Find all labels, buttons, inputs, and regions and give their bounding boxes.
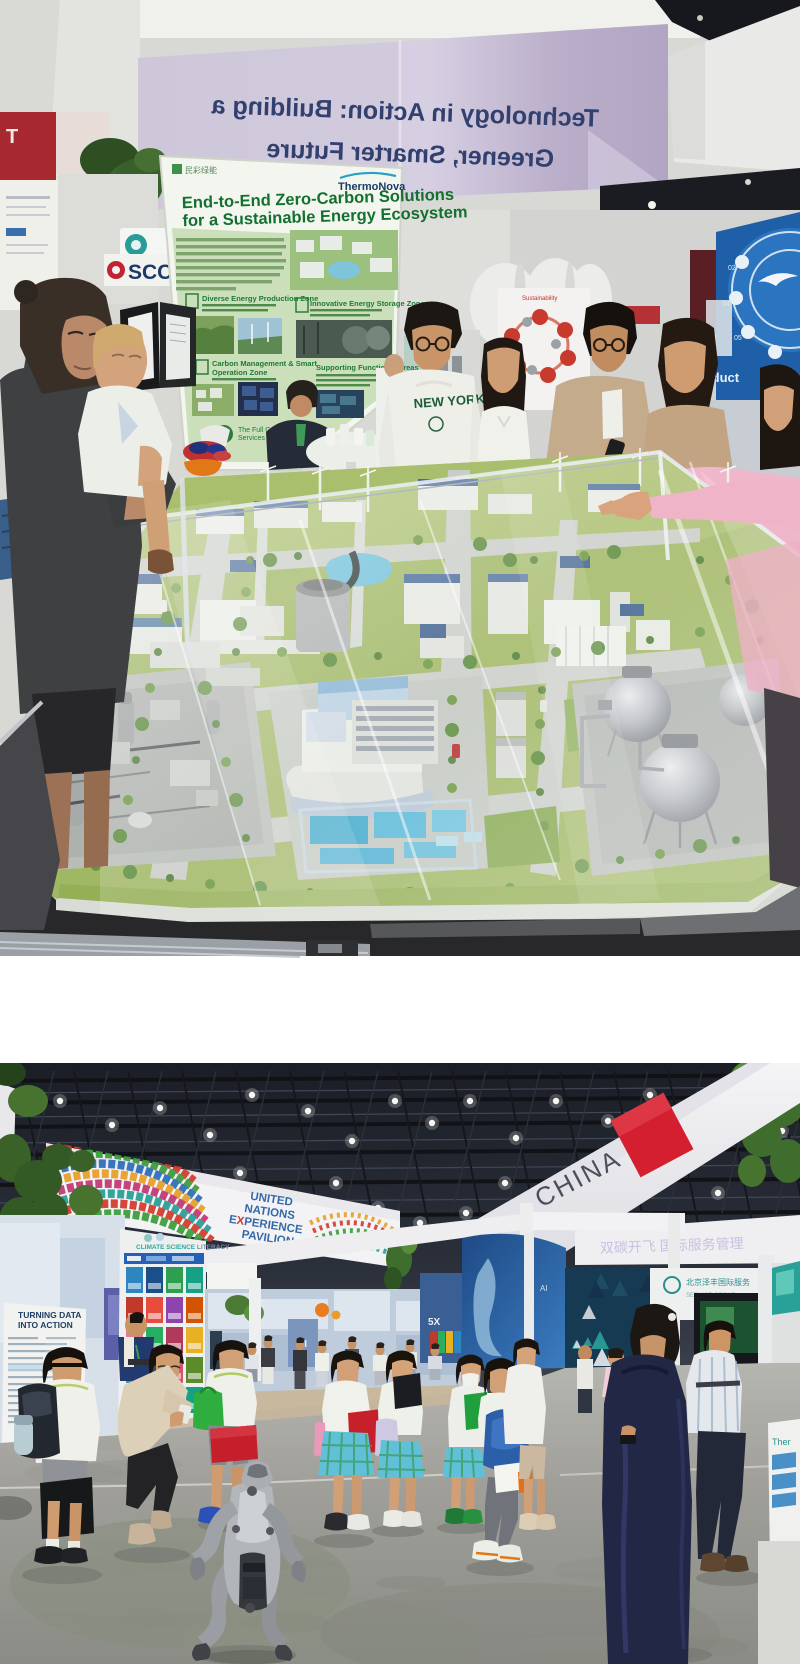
- svg-text:Innovative Energy Storage Zone: Innovative Energy Storage Zone: [310, 299, 425, 308]
- svg-text:Sustainability: Sustainability: [522, 296, 557, 302]
- svg-text:SCC: SCC: [128, 261, 172, 284]
- svg-text:Ther: Ther: [772, 1437, 791, 1447]
- svg-text:Operation Zone: Operation Zone: [212, 368, 267, 377]
- svg-text:AI: AI: [540, 1284, 548, 1293]
- svg-text:05: 05: [734, 335, 742, 342]
- svg-text:北京泽丰国际服务: 北京泽丰国际服务: [686, 1277, 750, 1287]
- svg-text:T: T: [6, 126, 18, 148]
- svg-text:Carbon Management & Smart: Carbon Management & Smart: [212, 359, 318, 368]
- svg-text:TURNING DATA: TURNING DATA: [18, 1310, 81, 1320]
- svg-text:5X: 5X: [428, 1317, 441, 1328]
- svg-text:CLIMATE SCIENCE LITERACY: CLIMATE SCIENCE LITERACY: [136, 1244, 230, 1251]
- svg-text:Services: Services: [238, 435, 265, 442]
- svg-text:INTO ACTION: INTO ACTION: [18, 1320, 73, 1330]
- svg-text:民彩绿能: 民彩绿能: [185, 165, 217, 175]
- svg-text:02: 02: [728, 265, 736, 272]
